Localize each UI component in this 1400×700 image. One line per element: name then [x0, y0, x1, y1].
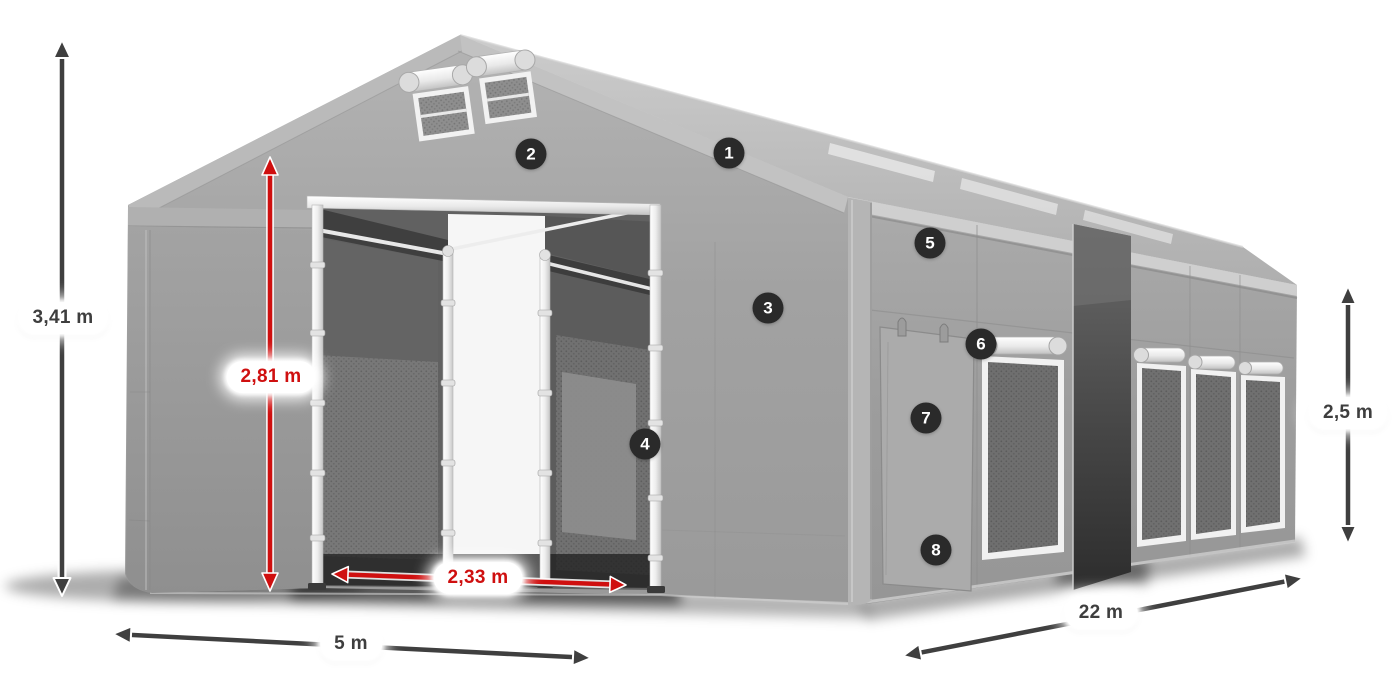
side-window: [1134, 348, 1187, 548]
dim-label-entrance-height: 2,81 m: [227, 361, 316, 393]
dim-label-total-height: 3,41 m: [19, 302, 108, 334]
sliding-door-gap: [1073, 224, 1131, 590]
frame-pole: [540, 253, 550, 585]
side-window: [1239, 362, 1286, 534]
through-opening: [448, 214, 545, 585]
callout-7: 7: [911, 403, 942, 434]
callout-1: 1: [714, 138, 745, 169]
dim-label-side-wall-height: 2,5 m: [1309, 397, 1387, 429]
dim-label-front-width: 5 m: [320, 628, 382, 660]
callout-8: 8: [921, 535, 952, 566]
diagram-stage: 3,41 m 2,81 m 2,33 m 5 m 22 m 2,5 m 1 2 …: [0, 0, 1400, 700]
door-hook: [940, 324, 948, 342]
frame-pole: [650, 205, 661, 590]
entrance-interior: [316, 207, 660, 590]
callout-6: 6: [966, 329, 997, 360]
front-corner-roll: [845, 197, 872, 605]
callout-3: 3: [753, 293, 784, 324]
side-window: [1188, 355, 1236, 540]
tent-illustration: [0, 0, 1400, 700]
door-hook: [898, 318, 906, 336]
dim-label-side-length: 22 m: [1065, 597, 1138, 629]
callout-5: 5: [915, 228, 946, 259]
callout-4: 4: [630, 429, 661, 460]
left-wall: [126, 207, 316, 593]
side-window: [979, 337, 1067, 560]
dim-label-entrance-width: 2,33 m: [434, 562, 523, 594]
callout-2: 2: [516, 139, 547, 170]
